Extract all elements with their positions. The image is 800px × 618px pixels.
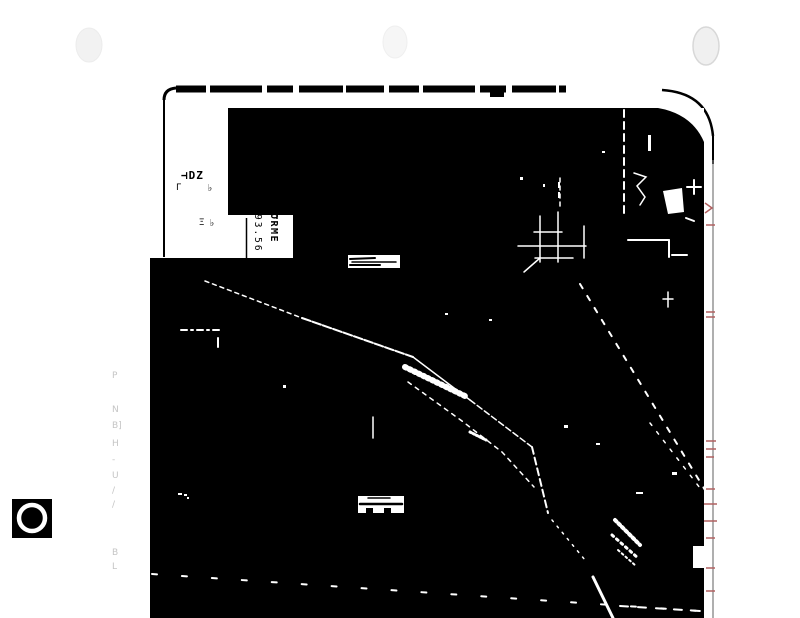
legend-fragment-5: ♭: [209, 219, 215, 229]
legend-fragment-2: Γ: [176, 184, 181, 193]
map-scan-svg: [0, 0, 800, 618]
survey-value-column: 93.56: [253, 214, 263, 253]
white-sliver: [648, 135, 651, 151]
legend-fragment-4: Ξ: [199, 219, 204, 228]
margin-char-9: L: [112, 563, 117, 572]
margin-char-2: B]: [112, 422, 122, 431]
border-blob: [490, 91, 504, 97]
label-box-lower: [358, 496, 404, 513]
red-ticks: [704, 203, 717, 591]
hole-punch-right: [693, 27, 719, 65]
margin-char-8: B: [112, 549, 118, 558]
margin-char-3: H: [112, 440, 119, 449]
black-band-mid: [293, 215, 704, 258]
legend-fragment-3: ♭: [207, 184, 213, 194]
hole-punch-middle: [383, 26, 407, 58]
border-corner-top-left: [164, 88, 176, 100]
white-edge-notch: [693, 546, 704, 568]
label-bar-upper: [348, 255, 400, 268]
margin-char-4: -: [112, 456, 115, 465]
registration-stamp: [12, 499, 52, 538]
margin-char-7: /: [112, 501, 115, 510]
margin-char-6: /: [112, 487, 115, 496]
red-arrow-mark: [705, 203, 712, 213]
legend-fragment-1: ⊣DZ: [181, 170, 204, 181]
hole-punch-left: [76, 28, 102, 62]
survey-name-column: ORME: [268, 213, 278, 243]
scanned-page: ⊣DZ Γ ♭ Ξ ♭ 93.56 ORME P N B] H - U / / …: [0, 0, 800, 618]
margin-char-1: N: [112, 406, 119, 415]
black-band-top: [228, 108, 704, 215]
margin-char-0: P: [112, 372, 117, 381]
black-body: [150, 258, 704, 618]
margin-char-5: U: [112, 472, 119, 481]
hole-punches: [76, 26, 719, 65]
